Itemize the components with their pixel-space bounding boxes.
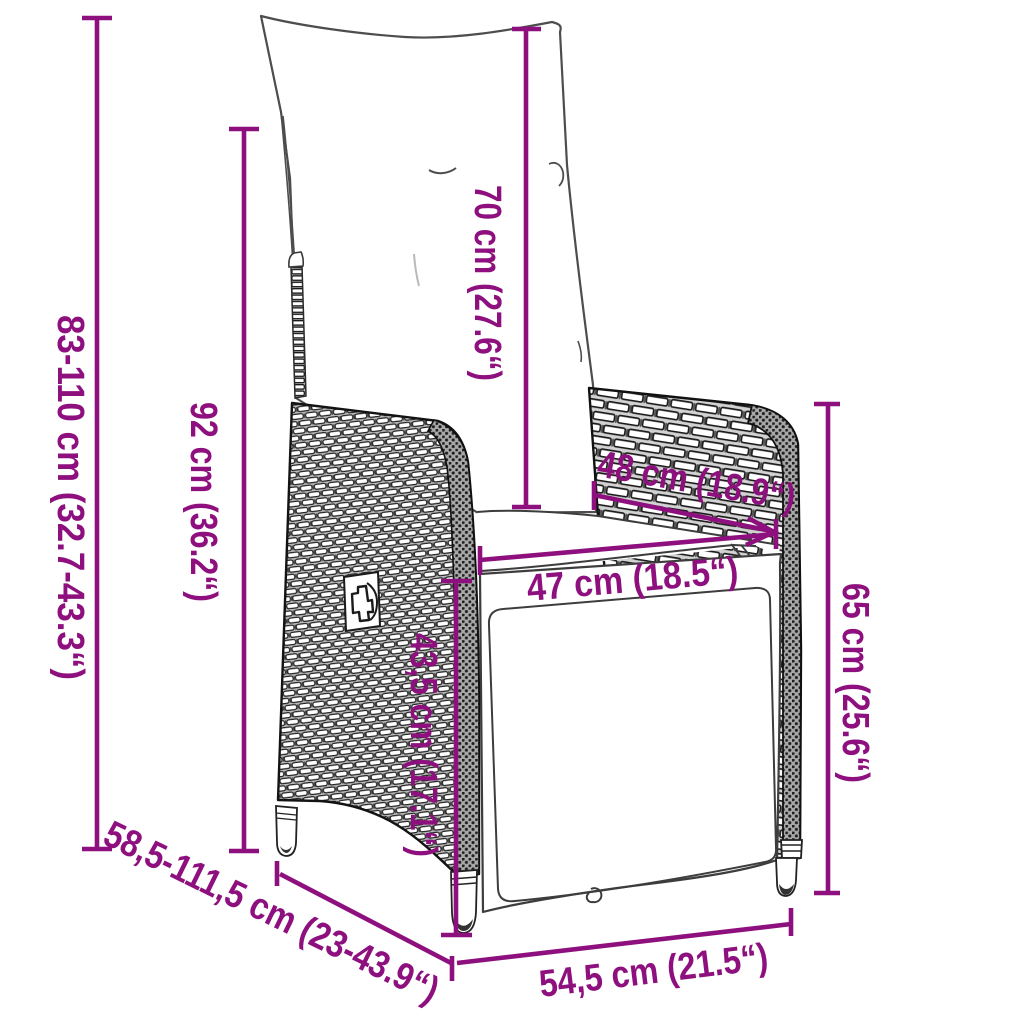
- svg-text:83-110 cm (32.7-43.3“): 83-110 cm (32.7-43.3“): [49, 315, 91, 680]
- svg-text:70 cm (27.6“): 70 cm (27.6“): [466, 185, 508, 381]
- svg-text:92 cm (36.2“): 92 cm (36.2“): [182, 402, 224, 602]
- svg-text:43,5 cm (17.1“): 43,5 cm (17.1“): [402, 633, 444, 857]
- svg-text:65 cm (25.6“): 65 cm (25.6“): [834, 583, 876, 783]
